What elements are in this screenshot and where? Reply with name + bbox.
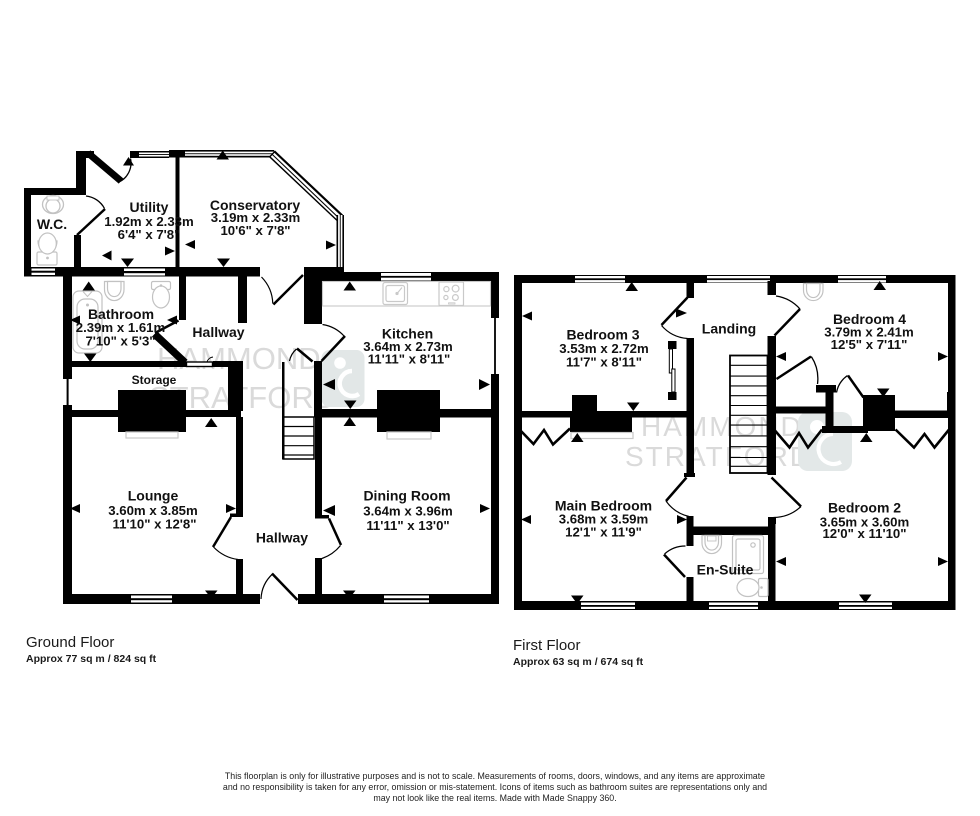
svg-text:En-Suite: En-Suite	[697, 562, 754, 578]
svg-text:W.C.: W.C.	[37, 216, 67, 232]
svg-text:Hallway: Hallway	[192, 324, 244, 340]
svg-text:Dining Room: Dining Room	[363, 488, 450, 504]
svg-text:Bedroom 2: Bedroom 2	[828, 500, 901, 516]
svg-text:12'1" x 11'9": 12'1" x 11'9"	[565, 525, 642, 540]
svg-text:6'4" x 7'8": 6'4" x 7'8"	[118, 227, 181, 242]
svg-text:11'10" x 12'8": 11'10" x 12'8"	[112, 517, 196, 532]
svg-text:STRATFORD: STRATFORD	[625, 441, 812, 472]
svg-text:Ground Floor: Ground Floor	[26, 634, 114, 651]
svg-text:7'10" x 5'3": 7'10" x 5'3"	[85, 334, 155, 349]
svg-text:Hallway: Hallway	[256, 530, 308, 546]
svg-text:Approx 63 sq m / 674 sq ft: Approx 63 sq m / 674 sq ft	[513, 656, 644, 668]
svg-text:may not look like the real ite: may not look like the real items. Made w…	[373, 793, 616, 803]
svg-text:This floorplan is only for ill: This floorplan is only for illustrative …	[225, 771, 765, 781]
svg-text:and no responsibility is taken: and no responsibility is taken for any e…	[223, 782, 767, 792]
svg-text:First Floor: First Floor	[513, 637, 581, 654]
svg-text:Approx 77 sq m / 824 sq ft: Approx 77 sq m / 824 sq ft	[26, 653, 157, 665]
svg-text:12'0" x 11'10": 12'0" x 11'10"	[822, 526, 906, 541]
svg-text:12'5" x 7'11": 12'5" x 7'11"	[831, 337, 908, 352]
svg-text:11'11" x 13'0": 11'11" x 13'0"	[366, 518, 449, 533]
svg-text:10'6" x 7'8": 10'6" x 7'8"	[220, 223, 290, 238]
svg-text:Lounge: Lounge	[128, 488, 179, 504]
svg-text:11'11" x 8'11": 11'11" x 8'11"	[368, 352, 451, 367]
svg-text:11'7" x 8'11": 11'7" x 8'11"	[566, 355, 642, 370]
svg-text:Landing: Landing	[702, 321, 756, 337]
svg-text:3.64m x 3.96m: 3.64m x 3.96m	[363, 504, 452, 519]
svg-text:Utility: Utility	[130, 199, 169, 215]
svg-text:Storage: Storage	[132, 373, 177, 387]
